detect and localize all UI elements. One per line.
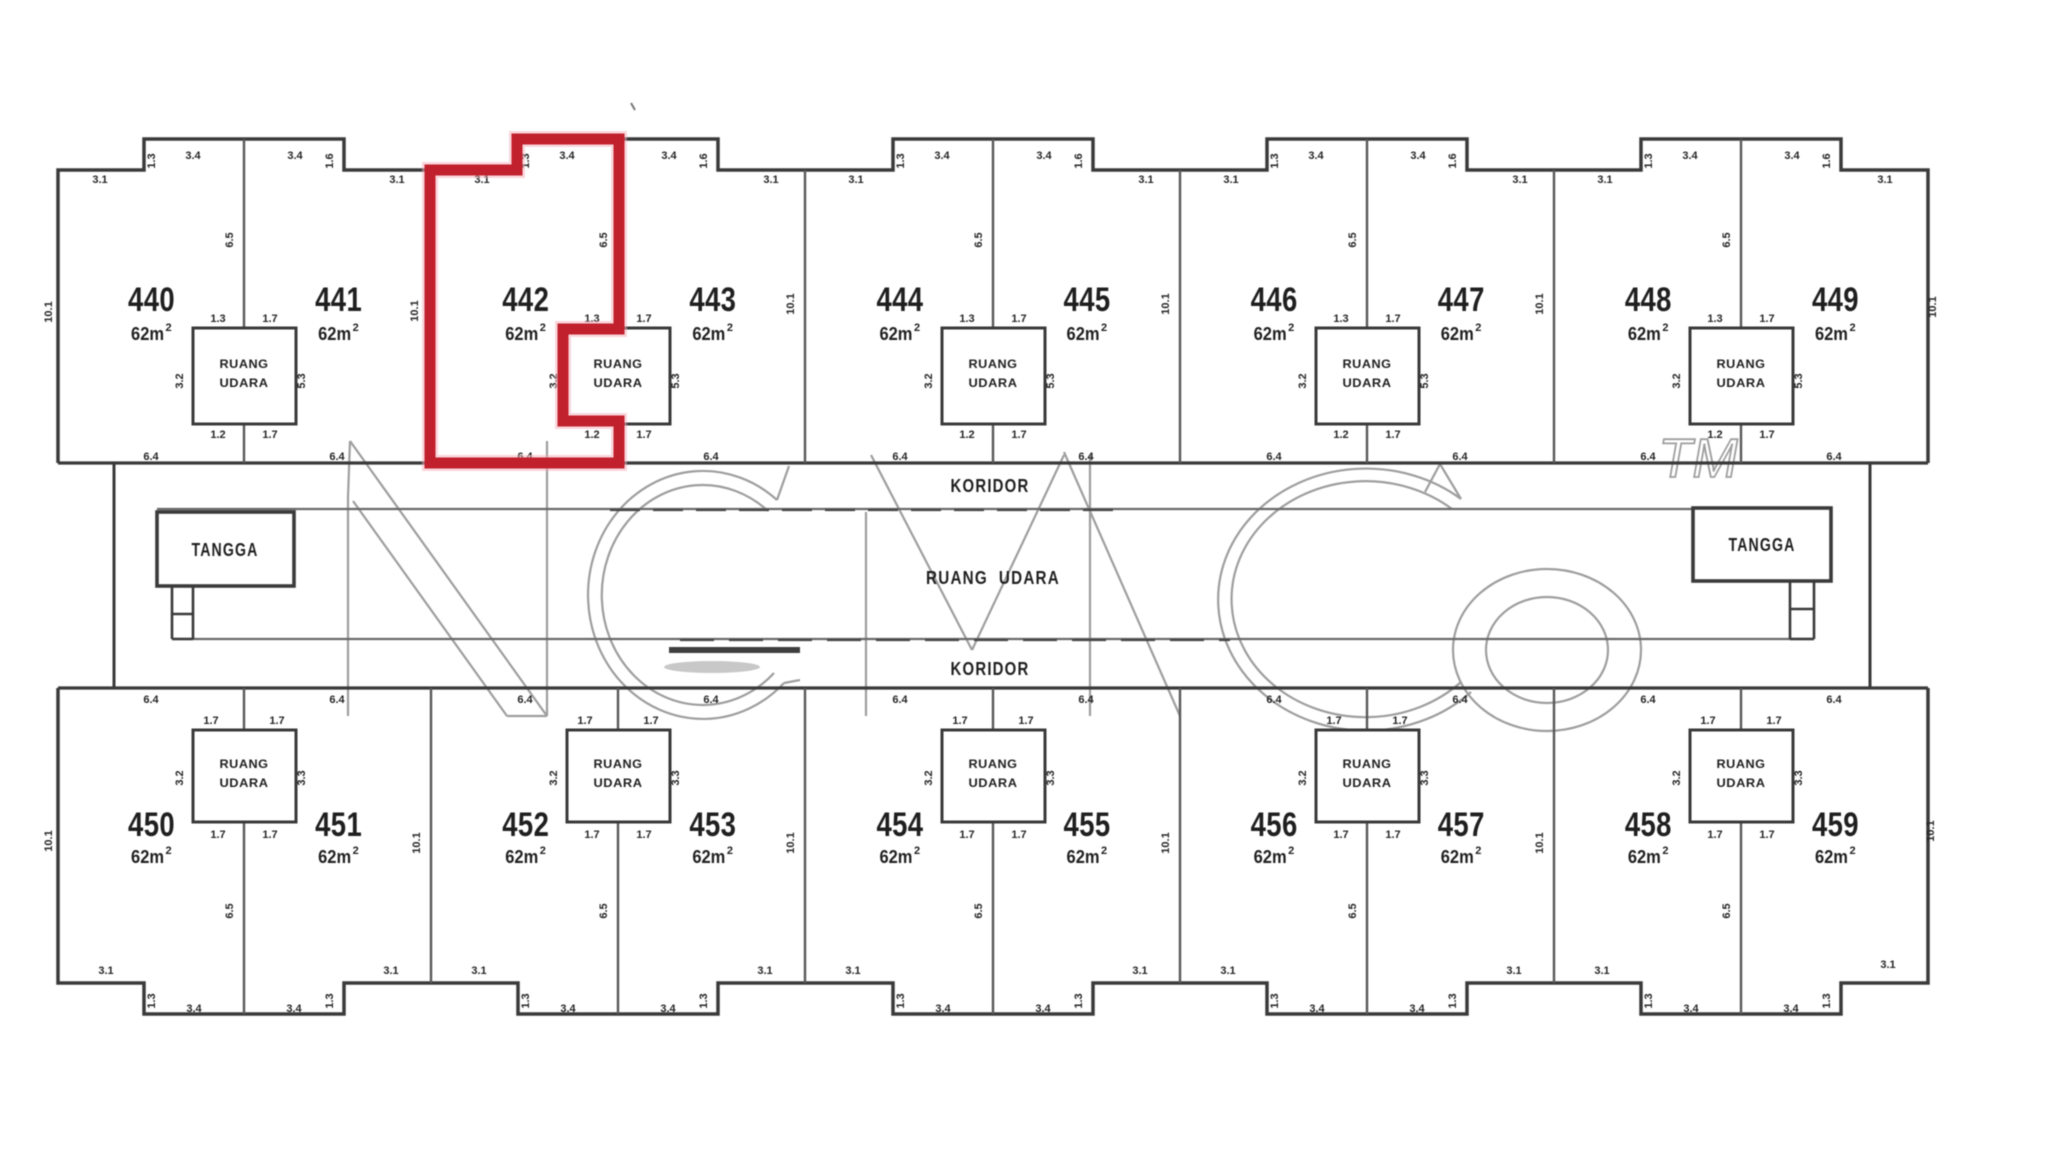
svg-text:3.1: 3.1: [1594, 965, 1609, 977]
svg-text:454: 454: [876, 806, 923, 844]
svg-text:6.4: 6.4: [517, 694, 533, 706]
svg-text:3.3: 3.3: [1045, 770, 1057, 785]
svg-text:3.2: 3.2: [548, 770, 560, 785]
svg-text:3.4: 3.4: [287, 150, 303, 162]
svg-text:62m: 62m: [1441, 847, 1474, 867]
svg-text:UDARA: UDARA: [1717, 376, 1766, 390]
svg-text:6.4: 6.4: [892, 451, 908, 463]
svg-text:3.1: 3.1: [1506, 965, 1521, 977]
svg-text:6.5: 6.5: [1347, 232, 1359, 247]
svg-text:UDARA: UDARA: [594, 776, 643, 790]
svg-text:62m: 62m: [692, 847, 725, 867]
svg-text:453: 453: [689, 806, 736, 844]
svg-text:3.4: 3.4: [559, 150, 575, 162]
svg-text:62m: 62m: [1815, 847, 1848, 867]
svg-text:3.1: 3.1: [389, 174, 404, 186]
svg-text:2: 2: [727, 845, 733, 857]
svg-text:62m: 62m: [318, 324, 351, 344]
svg-text:3.1: 3.1: [757, 965, 772, 977]
svg-text:445: 445: [1064, 281, 1111, 319]
svg-text:3.1: 3.1: [1138, 174, 1153, 186]
svg-text:1.7: 1.7: [1011, 829, 1026, 841]
svg-text:3.4: 3.4: [934, 150, 950, 162]
svg-text:2: 2: [1849, 845, 1855, 857]
svg-text:3.1: 3.1: [92, 174, 107, 186]
svg-text:1.7: 1.7: [269, 715, 284, 727]
svg-text:62m: 62m: [1815, 324, 1848, 344]
svg-text:1.3: 1.3: [1821, 993, 1833, 1008]
svg-text:1.7: 1.7: [636, 313, 651, 325]
svg-text:TM: TM: [1654, 427, 1744, 489]
svg-text:6.4: 6.4: [1266, 694, 1282, 706]
svg-text:TANGGA: TANGGA: [192, 539, 259, 560]
svg-text:6.5: 6.5: [1347, 903, 1359, 918]
svg-text:RUANG UDARA: RUANG UDARA: [926, 567, 1060, 588]
svg-text:1.2: 1.2: [1333, 429, 1348, 441]
svg-text:RUANG: RUANG: [220, 757, 269, 771]
svg-text:2: 2: [540, 322, 546, 334]
svg-text:UDARA: UDARA: [1343, 376, 1392, 390]
svg-text:10.1: 10.1: [1160, 293, 1172, 314]
svg-text:3.2: 3.2: [174, 373, 186, 388]
svg-text:UDARA: UDARA: [220, 376, 269, 390]
svg-text:6.4: 6.4: [1826, 451, 1842, 463]
svg-text:10.1: 10.1: [1534, 832, 1546, 853]
svg-text:3.2: 3.2: [923, 770, 935, 785]
svg-text:TANGGA: TANGGA: [1729, 534, 1796, 555]
svg-text:1.7: 1.7: [1326, 715, 1341, 727]
svg-text:3.1: 3.1: [98, 965, 113, 977]
svg-text:1.7: 1.7: [1011, 429, 1026, 441]
svg-text:6.4: 6.4: [1452, 694, 1468, 706]
svg-text:62m: 62m: [318, 847, 351, 867]
svg-text:3.4: 3.4: [660, 1003, 676, 1015]
svg-text:3.3: 3.3: [296, 770, 308, 785]
svg-text:2: 2: [1288, 845, 1294, 857]
svg-text:1.7: 1.7: [1385, 429, 1400, 441]
svg-text:3.4: 3.4: [1410, 150, 1426, 162]
svg-text:2: 2: [727, 322, 733, 334]
svg-text:62m: 62m: [1254, 324, 1287, 344]
svg-text:6.4: 6.4: [329, 451, 345, 463]
svg-text:10.1: 10.1: [1534, 293, 1546, 314]
svg-text:448: 448: [1625, 281, 1672, 319]
svg-text:1.2: 1.2: [1707, 429, 1722, 441]
svg-text:3.3: 3.3: [670, 770, 682, 785]
svg-text:2: 2: [914, 845, 920, 857]
svg-text:1.7: 1.7: [584, 829, 599, 841]
svg-text:3.4: 3.4: [186, 1003, 202, 1015]
svg-text:1.3: 1.3: [1707, 313, 1722, 325]
svg-text:KORIDOR: KORIDOR: [951, 475, 1030, 496]
svg-text:3.3: 3.3: [1793, 770, 1805, 785]
svg-text:62m: 62m: [1441, 324, 1474, 344]
svg-text:1.3: 1.3: [895, 153, 907, 168]
svg-text:62m: 62m: [692, 324, 725, 344]
svg-text:455: 455: [1064, 806, 1111, 844]
svg-text:1.3: 1.3: [210, 313, 225, 325]
svg-text:1.7: 1.7: [643, 715, 658, 727]
svg-text:6.5: 6.5: [598, 903, 610, 918]
svg-text:62m: 62m: [1628, 847, 1661, 867]
svg-text:3.4: 3.4: [1035, 1003, 1051, 1015]
svg-text:3.1: 3.1: [845, 965, 860, 977]
svg-text:3.1: 3.1: [1512, 174, 1527, 186]
svg-text:2: 2: [353, 322, 359, 334]
svg-text:1.3: 1.3: [1073, 993, 1085, 1008]
svg-text:6.5: 6.5: [224, 232, 236, 247]
svg-text:451: 451: [315, 806, 362, 844]
svg-text:440: 440: [128, 281, 175, 319]
svg-text:458: 458: [1625, 806, 1672, 844]
svg-text:2: 2: [914, 322, 920, 334]
svg-text:3.4: 3.4: [185, 150, 201, 162]
svg-text:RUANG: RUANG: [1717, 357, 1766, 371]
svg-text:1.7: 1.7: [1392, 715, 1407, 727]
svg-text:1.7: 1.7: [210, 829, 225, 841]
svg-text:1.7: 1.7: [1707, 829, 1722, 841]
svg-text:1.3: 1.3: [324, 993, 336, 1008]
svg-text:3.3: 3.3: [1419, 770, 1431, 785]
svg-text:1.7: 1.7: [1011, 313, 1026, 325]
svg-text:6.5: 6.5: [224, 903, 236, 918]
svg-text:3.1: 3.1: [1877, 174, 1892, 186]
svg-text:3.4: 3.4: [560, 1003, 576, 1015]
svg-text:3.2: 3.2: [174, 770, 186, 785]
svg-text:6.4: 6.4: [143, 694, 159, 706]
svg-text:6.4: 6.4: [703, 451, 719, 463]
svg-text:10.1: 10.1: [43, 301, 55, 322]
svg-text:3.4: 3.4: [935, 1003, 951, 1015]
svg-text:RUANG: RUANG: [594, 757, 643, 771]
svg-text:2: 2: [1101, 322, 1107, 334]
svg-text:3.4: 3.4: [1683, 1003, 1699, 1015]
svg-text:1.7: 1.7: [262, 429, 277, 441]
svg-text:1.3: 1.3: [1643, 153, 1655, 168]
svg-text:459: 459: [1812, 806, 1859, 844]
svg-text:2: 2: [1475, 322, 1481, 334]
svg-text:1.3: 1.3: [1643, 993, 1655, 1008]
svg-text:62m: 62m: [1254, 847, 1287, 867]
svg-text:3.4: 3.4: [286, 1003, 302, 1015]
svg-text:3.1: 3.1: [763, 174, 778, 186]
svg-text:1.7: 1.7: [636, 429, 651, 441]
svg-text:3.4: 3.4: [661, 150, 677, 162]
svg-text:2: 2: [1662, 845, 1668, 857]
svg-text:10.1: 10.1: [1927, 296, 1939, 317]
svg-text:1.3: 1.3: [959, 313, 974, 325]
svg-text:RUANG: RUANG: [594, 357, 643, 371]
svg-text:3.1: 3.1: [848, 174, 863, 186]
svg-text:3.1: 3.1: [1220, 965, 1235, 977]
svg-text:1.3: 1.3: [520, 993, 532, 1008]
svg-text:3.1: 3.1: [1223, 174, 1238, 186]
svg-text:2: 2: [1662, 322, 1668, 334]
svg-text:1.2: 1.2: [959, 429, 974, 441]
svg-text:6.4: 6.4: [329, 694, 345, 706]
svg-text:10.1: 10.1: [411, 832, 423, 853]
svg-text:62m: 62m: [505, 847, 538, 867]
svg-text:6.4: 6.4: [1078, 451, 1094, 463]
svg-text:3.4: 3.4: [1783, 1003, 1799, 1015]
svg-text:6.4: 6.4: [1452, 451, 1468, 463]
svg-text:62m: 62m: [1067, 324, 1100, 344]
svg-text:3.1: 3.1: [1132, 965, 1147, 977]
svg-text:452: 452: [502, 806, 549, 844]
svg-text:1.7: 1.7: [636, 829, 651, 841]
svg-text:2: 2: [540, 845, 546, 857]
svg-text:1.7: 1.7: [1766, 715, 1781, 727]
svg-text:3.1: 3.1: [1880, 959, 1895, 971]
svg-text:UDARA: UDARA: [1343, 776, 1392, 790]
svg-text:5.3: 5.3: [296, 373, 308, 388]
svg-text:2: 2: [1475, 845, 1481, 857]
svg-text:10.1: 10.1: [785, 832, 797, 853]
svg-text:1.6: 1.6: [1821, 153, 1833, 168]
svg-text:62m: 62m: [131, 324, 164, 344]
svg-text:6.5: 6.5: [973, 232, 985, 247]
svg-text:1.7: 1.7: [1759, 313, 1774, 325]
svg-text:6.4: 6.4: [1640, 694, 1656, 706]
svg-text:RUANG: RUANG: [969, 757, 1018, 771]
svg-text:UDARA: UDARA: [969, 376, 1018, 390]
svg-text:3.1: 3.1: [471, 965, 486, 977]
svg-text:1.3: 1.3: [146, 153, 158, 168]
svg-text:RUANG: RUANG: [1343, 357, 1392, 371]
svg-text:3.4: 3.4: [1308, 150, 1324, 162]
svg-text:3.2: 3.2: [1297, 373, 1309, 388]
svg-text:1.7: 1.7: [1759, 829, 1774, 841]
svg-text:62m: 62m: [131, 847, 164, 867]
svg-text:443: 443: [689, 281, 736, 319]
svg-text:6.4: 6.4: [703, 694, 719, 706]
svg-text:1.7: 1.7: [577, 715, 592, 727]
svg-text:3.1: 3.1: [383, 965, 398, 977]
svg-text:444: 444: [876, 281, 923, 319]
svg-text:1.7: 1.7: [959, 829, 974, 841]
svg-text:2: 2: [166, 322, 172, 334]
svg-text:6.5: 6.5: [598, 232, 610, 247]
svg-text:449: 449: [1812, 281, 1859, 319]
svg-text:2: 2: [166, 845, 172, 857]
svg-text:1.7: 1.7: [1333, 829, 1348, 841]
svg-text:RUANG: RUANG: [1717, 757, 1766, 771]
svg-text:442: 442: [502, 281, 549, 319]
svg-text:6.5: 6.5: [1721, 232, 1733, 247]
svg-text:1.7: 1.7: [1018, 715, 1033, 727]
svg-text:1.7: 1.7: [1759, 429, 1774, 441]
svg-text:UDARA: UDARA: [220, 776, 269, 790]
svg-text:RUANG: RUANG: [1343, 757, 1392, 771]
svg-text:1.6: 1.6: [1073, 153, 1085, 168]
svg-text:3.4: 3.4: [1784, 150, 1800, 162]
svg-text:1.6: 1.6: [324, 153, 336, 168]
svg-text:3.1: 3.1: [1597, 174, 1612, 186]
svg-text:3.4: 3.4: [1682, 150, 1698, 162]
svg-text:6.5: 6.5: [973, 903, 985, 918]
svg-text:2: 2: [1849, 322, 1855, 334]
svg-text:1.3: 1.3: [895, 993, 907, 1008]
svg-text:UDARA: UDARA: [969, 776, 1018, 790]
svg-text:6.4: 6.4: [143, 451, 159, 463]
svg-text:1.3: 1.3: [698, 993, 710, 1008]
svg-text:1.3: 1.3: [1269, 153, 1281, 168]
svg-text:1.3: 1.3: [1333, 313, 1348, 325]
svg-text:1.3: 1.3: [146, 993, 158, 1008]
svg-text:1.7: 1.7: [1700, 715, 1715, 727]
svg-text:1.7: 1.7: [262, 313, 277, 325]
svg-text:450: 450: [128, 806, 175, 844]
svg-text:3.2: 3.2: [1671, 770, 1683, 785]
svg-text:1.7: 1.7: [952, 715, 967, 727]
svg-text:446: 446: [1251, 281, 1298, 319]
svg-text:1.7: 1.7: [262, 829, 277, 841]
svg-text:1.2: 1.2: [584, 429, 599, 441]
svg-text:1.3: 1.3: [1447, 993, 1459, 1008]
svg-text:2: 2: [353, 845, 359, 857]
svg-text:1.7: 1.7: [203, 715, 218, 727]
svg-text:1.7: 1.7: [1385, 829, 1400, 841]
svg-text:10.1: 10.1: [43, 830, 55, 851]
svg-text:62m: 62m: [1067, 847, 1100, 867]
svg-text:2: 2: [1101, 845, 1107, 857]
svg-text:10.1: 10.1: [409, 300, 421, 321]
svg-text:6.4: 6.4: [892, 694, 908, 706]
svg-text:3.2: 3.2: [1671, 373, 1683, 388]
svg-text:6.4: 6.4: [1826, 694, 1842, 706]
svg-text:UDARA: UDARA: [1717, 776, 1766, 790]
svg-text:UDARA: UDARA: [594, 376, 643, 390]
svg-text:6.4: 6.4: [1266, 451, 1282, 463]
svg-text:3.4: 3.4: [1309, 1003, 1325, 1015]
svg-text:1.6: 1.6: [698, 153, 710, 168]
svg-text:1.6: 1.6: [1447, 153, 1459, 168]
svg-text:1.3: 1.3: [1269, 993, 1281, 1008]
svg-text:62m: 62m: [1628, 324, 1661, 344]
svg-text:62m: 62m: [879, 847, 912, 867]
svg-text:KORIDOR: KORIDOR: [951, 658, 1030, 679]
svg-text:62m: 62m: [505, 324, 538, 344]
svg-text:1.2: 1.2: [210, 429, 225, 441]
svg-text:5.3: 5.3: [670, 373, 682, 388]
svg-text:RUANG: RUANG: [220, 357, 269, 371]
svg-text:3.2: 3.2: [1297, 770, 1309, 785]
svg-text:RUANG: RUANG: [969, 357, 1018, 371]
svg-text:5.3: 5.3: [1793, 373, 1805, 388]
svg-text:6.4: 6.4: [1078, 694, 1094, 706]
svg-text:6.4: 6.4: [1640, 451, 1656, 463]
svg-text:10.1: 10.1: [785, 293, 797, 314]
svg-text:456: 456: [1251, 806, 1298, 844]
svg-text:3.4: 3.4: [1036, 150, 1052, 162]
svg-text:3.2: 3.2: [923, 373, 935, 388]
svg-text:6.5: 6.5: [1721, 903, 1733, 918]
svg-text:10.1: 10.1: [1925, 820, 1937, 841]
svg-text:5.3: 5.3: [1045, 373, 1057, 388]
svg-text:10.1: 10.1: [1160, 832, 1172, 853]
svg-text:62m: 62m: [879, 324, 912, 344]
svg-text:5.3: 5.3: [1419, 373, 1431, 388]
svg-text:1.7: 1.7: [1385, 313, 1400, 325]
svg-text:3.4: 3.4: [1409, 1003, 1425, 1015]
svg-text:2: 2: [1288, 322, 1294, 334]
svg-text:457: 457: [1438, 806, 1485, 844]
svg-text:441: 441: [315, 281, 362, 319]
svg-text:447: 447: [1438, 281, 1485, 319]
